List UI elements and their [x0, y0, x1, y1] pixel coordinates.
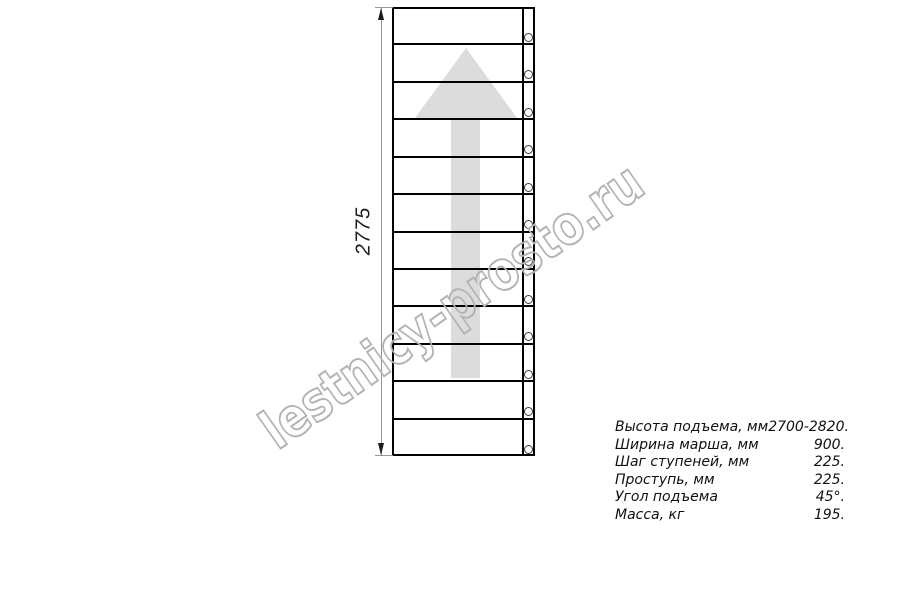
- spec-row: Масса, кг195.: [615, 507, 845, 525]
- spec-row: Шаг ступеней, мм225.: [615, 454, 845, 472]
- step-line: [392, 268, 535, 270]
- step-line: [392, 343, 535, 345]
- step-line: [392, 43, 535, 45]
- spec-row: Высота подъема, мм2700-2820.: [615, 419, 845, 437]
- step-line: [392, 231, 535, 233]
- stringer-hole: [524, 370, 533, 379]
- step-line: [392, 305, 535, 307]
- dimension-arrowhead-bottom: [378, 443, 384, 455]
- spec-value: 225.: [814, 472, 845, 490]
- spec-row: Ширина марша, мм900.: [615, 437, 845, 455]
- stringer-hole: [524, 407, 533, 416]
- specs-table: Высота подъема, мм2700-2820.Ширина марша…: [615, 419, 845, 525]
- spec-label: Масса, кг: [615, 507, 684, 525]
- stringer-hole: [524, 295, 533, 304]
- step-line: [392, 156, 535, 158]
- step-line: [392, 380, 535, 382]
- step-line: [392, 193, 535, 195]
- spec-label: Угол подъема: [615, 489, 718, 507]
- spec-label: Шаг ступеней, мм: [615, 454, 749, 472]
- stringer-hole: [524, 445, 533, 454]
- stringer-hole: [524, 183, 533, 192]
- stringer-hole: [524, 33, 533, 42]
- technical-drawing-canvas: 2775 Высота подъема, мм2700-2820.Ширина …: [0, 0, 900, 600]
- step-line: [392, 418, 535, 420]
- step-line: [392, 118, 535, 120]
- spec-row: Проступь, мм225.: [615, 472, 845, 490]
- stringer-hole: [524, 108, 533, 117]
- dimension-line: [381, 7, 382, 456]
- dimension-arrowhead-top: [378, 8, 384, 20]
- spec-value: 225.: [814, 454, 845, 472]
- step-line: [392, 81, 535, 83]
- spec-value: 195.: [814, 507, 845, 525]
- spec-label: Высота подъема, мм: [615, 419, 768, 437]
- spec-value: 45°.: [816, 489, 845, 507]
- dimension-label: 2775: [353, 207, 376, 256]
- spec-row: Угол подъема45°.: [615, 489, 845, 507]
- spec-value: 900.: [814, 437, 845, 455]
- stringer-hole: [524, 220, 533, 229]
- spec-label: Ширина марша, мм: [615, 437, 759, 455]
- dimension-extension-bottom: [375, 455, 393, 456]
- spec-value: 2700-2820.: [768, 419, 849, 437]
- spec-label: Проступь, мм: [615, 472, 715, 490]
